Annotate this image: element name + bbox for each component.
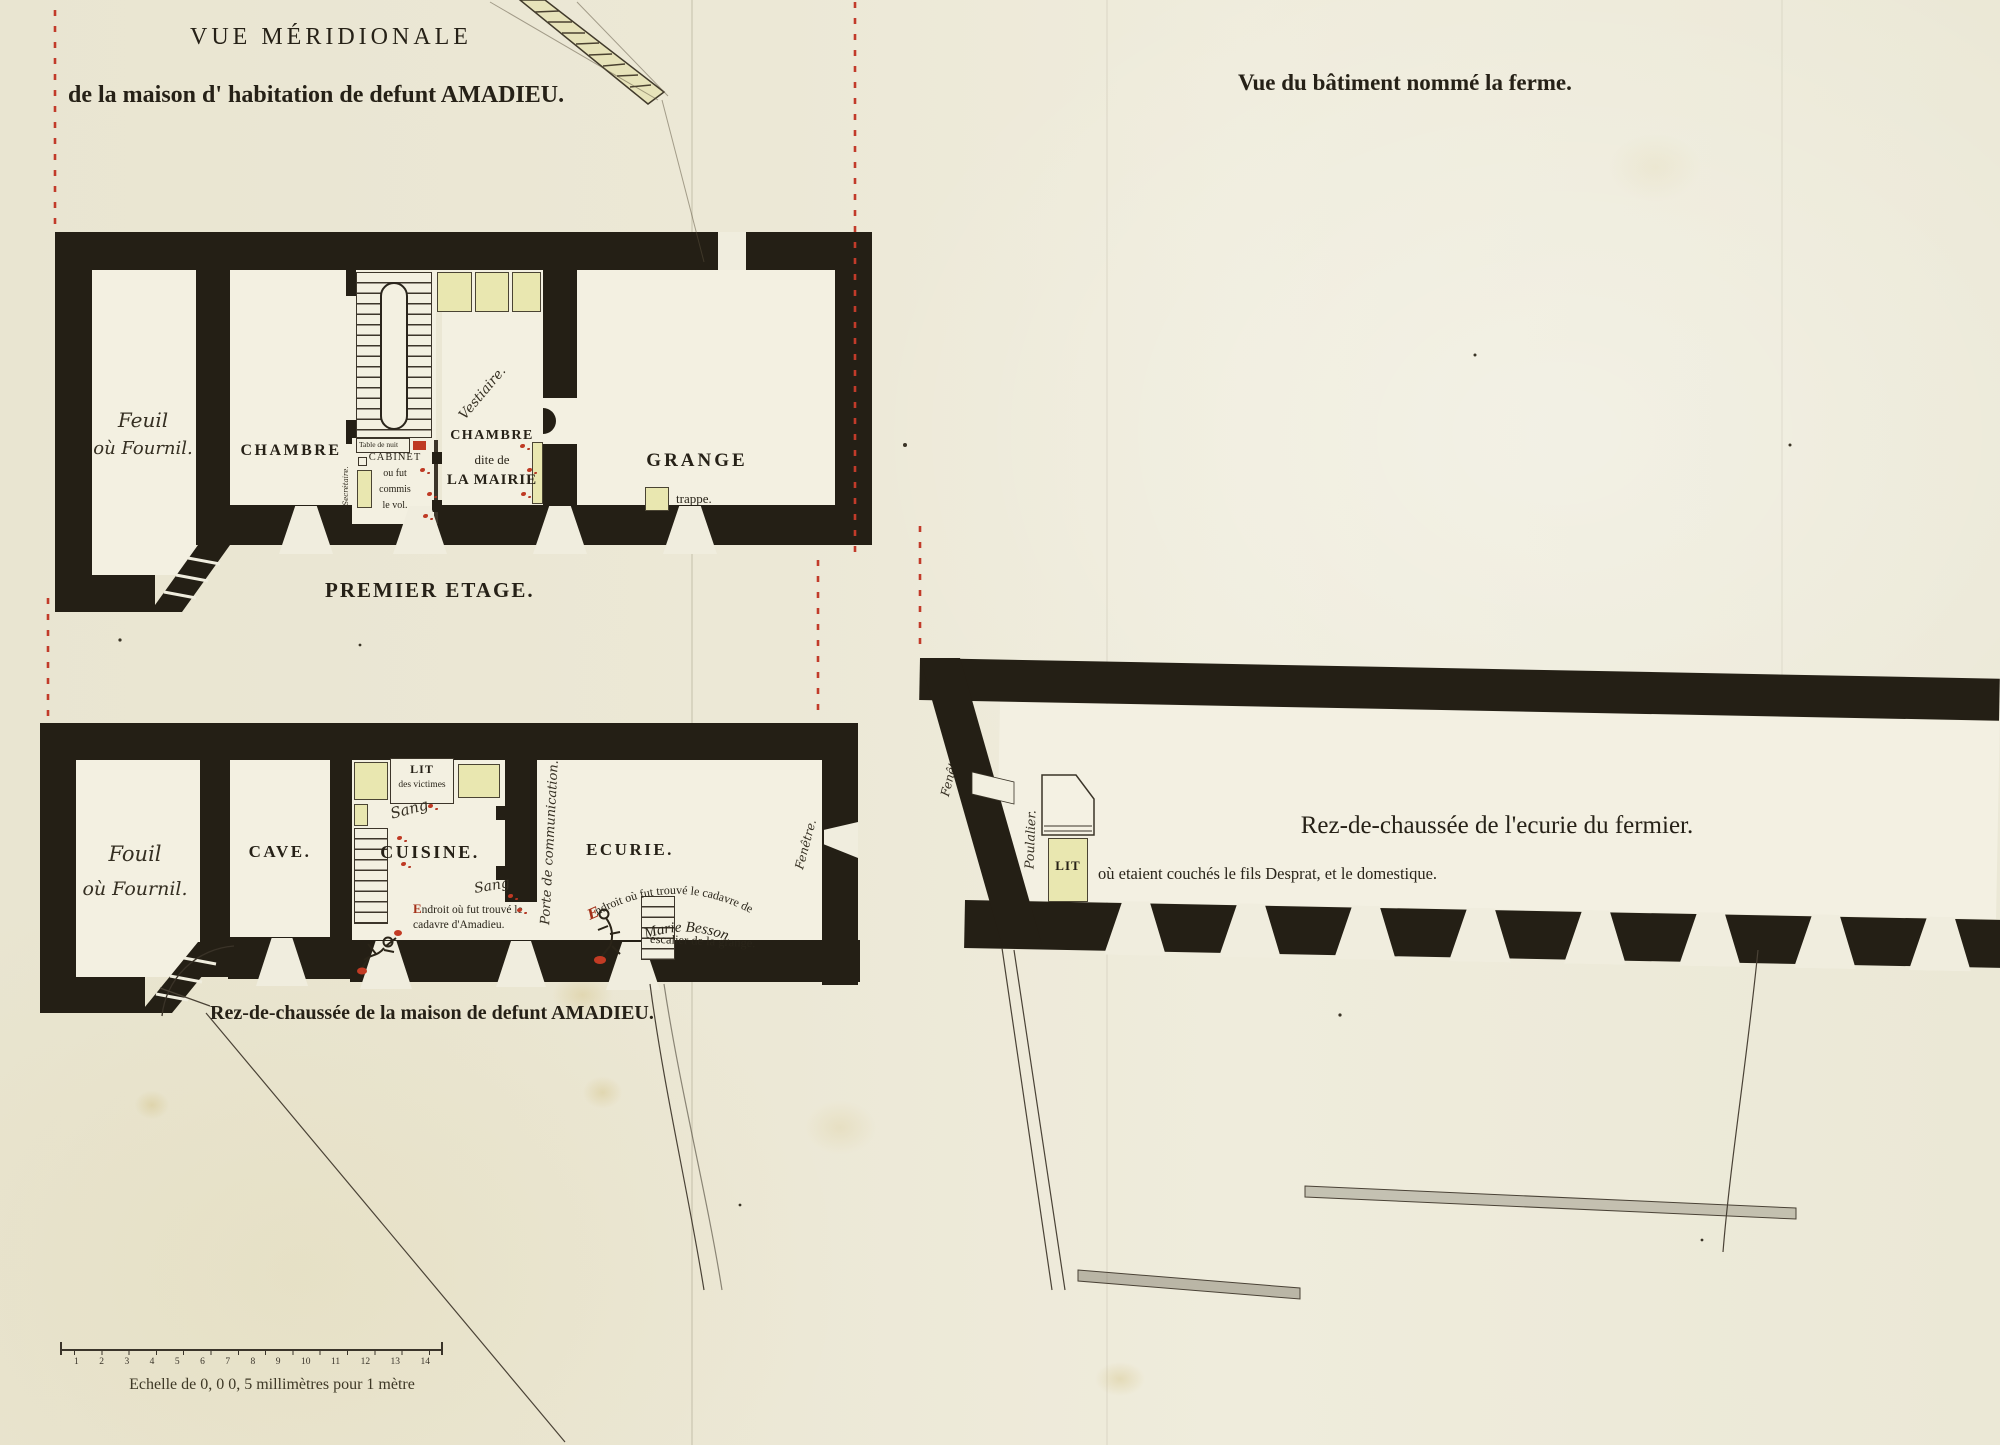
scale-tick: 3 xyxy=(124,1357,129,1367)
fenil-label-2: où Fournil. xyxy=(83,438,203,459)
window-opening xyxy=(1449,907,1512,962)
farm-plan-subtitle: où etaient couchés le fils Desprat, et l… xyxy=(1098,864,1437,884)
scale-bar-ticks xyxy=(74,1349,430,1355)
first-floor-top-wall-opening xyxy=(718,232,746,270)
cabinet-label-3: commis xyxy=(366,484,424,495)
chambre-label: CHAMBRE xyxy=(230,442,352,460)
scale-tick: 2 xyxy=(99,1357,104,1367)
yard-wall-segment xyxy=(1078,1270,1300,1299)
first-floor-divider-mairie-grange xyxy=(543,232,577,540)
scale-bar-end-tick xyxy=(60,1342,62,1355)
stair-rail-oval xyxy=(380,282,408,430)
window-opening xyxy=(1794,914,1857,969)
table-de-nuit-label: Table de nuit xyxy=(359,440,398,449)
grange-label: GRANGE xyxy=(577,450,817,472)
cabinet-label-1: CABINET xyxy=(366,452,424,463)
paper-stain xyxy=(128,1085,176,1125)
scanned-plan-page: VUE MÉRIDIONALE de la maison d' habitati… xyxy=(0,0,2000,1445)
fouil-label-1: Fouil xyxy=(85,842,185,866)
poulailler-label: Poulalier. xyxy=(1021,794,1039,884)
first-floor-left-wall xyxy=(55,232,92,612)
window-opening xyxy=(1334,905,1397,960)
fenil-label-1: Feuil xyxy=(95,408,191,432)
ground-floor-left-wall xyxy=(40,723,76,1013)
fouil-label-2: où Fournil. xyxy=(70,878,200,900)
ground-floor-caption: Rez-de-chaussée de la maison de defunt A… xyxy=(210,1002,654,1025)
room-fouil xyxy=(76,760,200,977)
farm-bed-label: LIT xyxy=(1048,858,1088,874)
mairie-label-1: CHAMBRE xyxy=(442,428,542,444)
scale-tick: 14 xyxy=(421,1357,431,1367)
door-jamb xyxy=(432,452,442,464)
window-opening xyxy=(1679,912,1742,967)
fenetre-label-farm: Fenêtre. xyxy=(938,736,966,798)
window-opening xyxy=(1909,916,1972,971)
amadieu-note-line2: cadavre d'Amadieu. xyxy=(413,919,504,931)
paper-stain xyxy=(575,1070,630,1115)
secretaire-label: Secrétaire. xyxy=(342,456,350,516)
scale-tick: 4 xyxy=(150,1357,155,1367)
trappe-label: trappe. xyxy=(676,491,712,507)
staircase-grange-access xyxy=(641,896,675,960)
first-floor-caption: PREMIER ETAGE. xyxy=(325,578,535,603)
scale-tick: 8 xyxy=(251,1357,256,1367)
amadieu-note-initial: E xyxy=(413,901,422,916)
cuisine-label: CUISINE. xyxy=(360,842,500,863)
scale-tick: 7 xyxy=(225,1357,230,1367)
yard-wall-segment xyxy=(1305,1186,1796,1219)
scale-tick: 13 xyxy=(391,1357,401,1367)
first-floor-top-wall xyxy=(55,232,872,270)
scale-bar-end-tick xyxy=(441,1342,443,1355)
victims-bed-label2: des victimes xyxy=(390,780,454,790)
ground-floor-top-wall xyxy=(40,723,858,760)
scale-tick: 9 xyxy=(276,1357,281,1367)
closet xyxy=(512,272,541,312)
divider-fouil-cave xyxy=(200,760,230,977)
farm-view-title: Vue du bâtiment nommé la ferme. xyxy=(1238,70,1572,96)
door-jamb xyxy=(432,500,442,512)
window-opening xyxy=(1219,903,1282,958)
paper-crease xyxy=(1781,0,1783,680)
farm-interior xyxy=(996,702,2000,919)
first-floor-divider-fenil-chambre xyxy=(196,270,230,545)
cupboard xyxy=(354,762,388,800)
stair-wall-stub xyxy=(346,268,356,296)
closet xyxy=(475,272,509,312)
scale-tick: 12 xyxy=(361,1357,371,1367)
closet xyxy=(437,272,472,312)
page-title-line2: de la maison d' habitation de defunt AMA… xyxy=(68,82,564,109)
scale-tick: 6 xyxy=(200,1357,205,1367)
scale-tick: 5 xyxy=(175,1357,180,1367)
window-opening xyxy=(1564,910,1627,965)
mairie-label-3: LA MAIRIE xyxy=(442,472,542,489)
scale-tick: 1 xyxy=(74,1357,79,1367)
first-floor-fenil-bottom-wall xyxy=(55,575,155,612)
page-title-line1: VUE MÉRIDIONALE xyxy=(190,24,472,51)
amadieu-note-line1: ndroit où fut trouvé le xyxy=(422,904,523,916)
fouil-bottom-wall xyxy=(40,977,145,1013)
cave-label: CAVE. xyxy=(230,842,330,862)
cupboard xyxy=(458,764,500,798)
paper-stain xyxy=(1590,120,1720,215)
victims-bed-label1: LIT xyxy=(390,762,454,777)
scale-tick: 10 xyxy=(301,1357,311,1367)
first-floor-right-wall xyxy=(835,232,872,545)
scale-tick: 11 xyxy=(331,1357,340,1367)
ecurie-label: ECURIE. xyxy=(570,840,690,860)
cupboard xyxy=(354,804,368,826)
room-chambre xyxy=(230,270,352,505)
folded-corner-ladder xyxy=(490,0,704,262)
mairie-label-2: dite de xyxy=(442,452,542,468)
paper-stain xyxy=(1085,1355,1155,1403)
scale-bar-numbers: 1234567891011121314 xyxy=(74,1357,430,1367)
red-mark xyxy=(413,441,426,450)
cabinet-label-2: ou fut xyxy=(366,468,424,479)
farm-plan-title: Rez-de-chaussée de l'ecurie du fermier. xyxy=(1147,812,1847,840)
window-opening xyxy=(1104,901,1167,956)
door-jamb xyxy=(496,806,507,820)
trappe-hatch xyxy=(645,487,669,511)
paper-stain xyxy=(790,1090,890,1165)
scale-caption: Echelle de 0, 0 0, 5 millimètres pour 1 … xyxy=(122,1376,422,1394)
ground-floor-bottom-wall xyxy=(350,940,860,982)
